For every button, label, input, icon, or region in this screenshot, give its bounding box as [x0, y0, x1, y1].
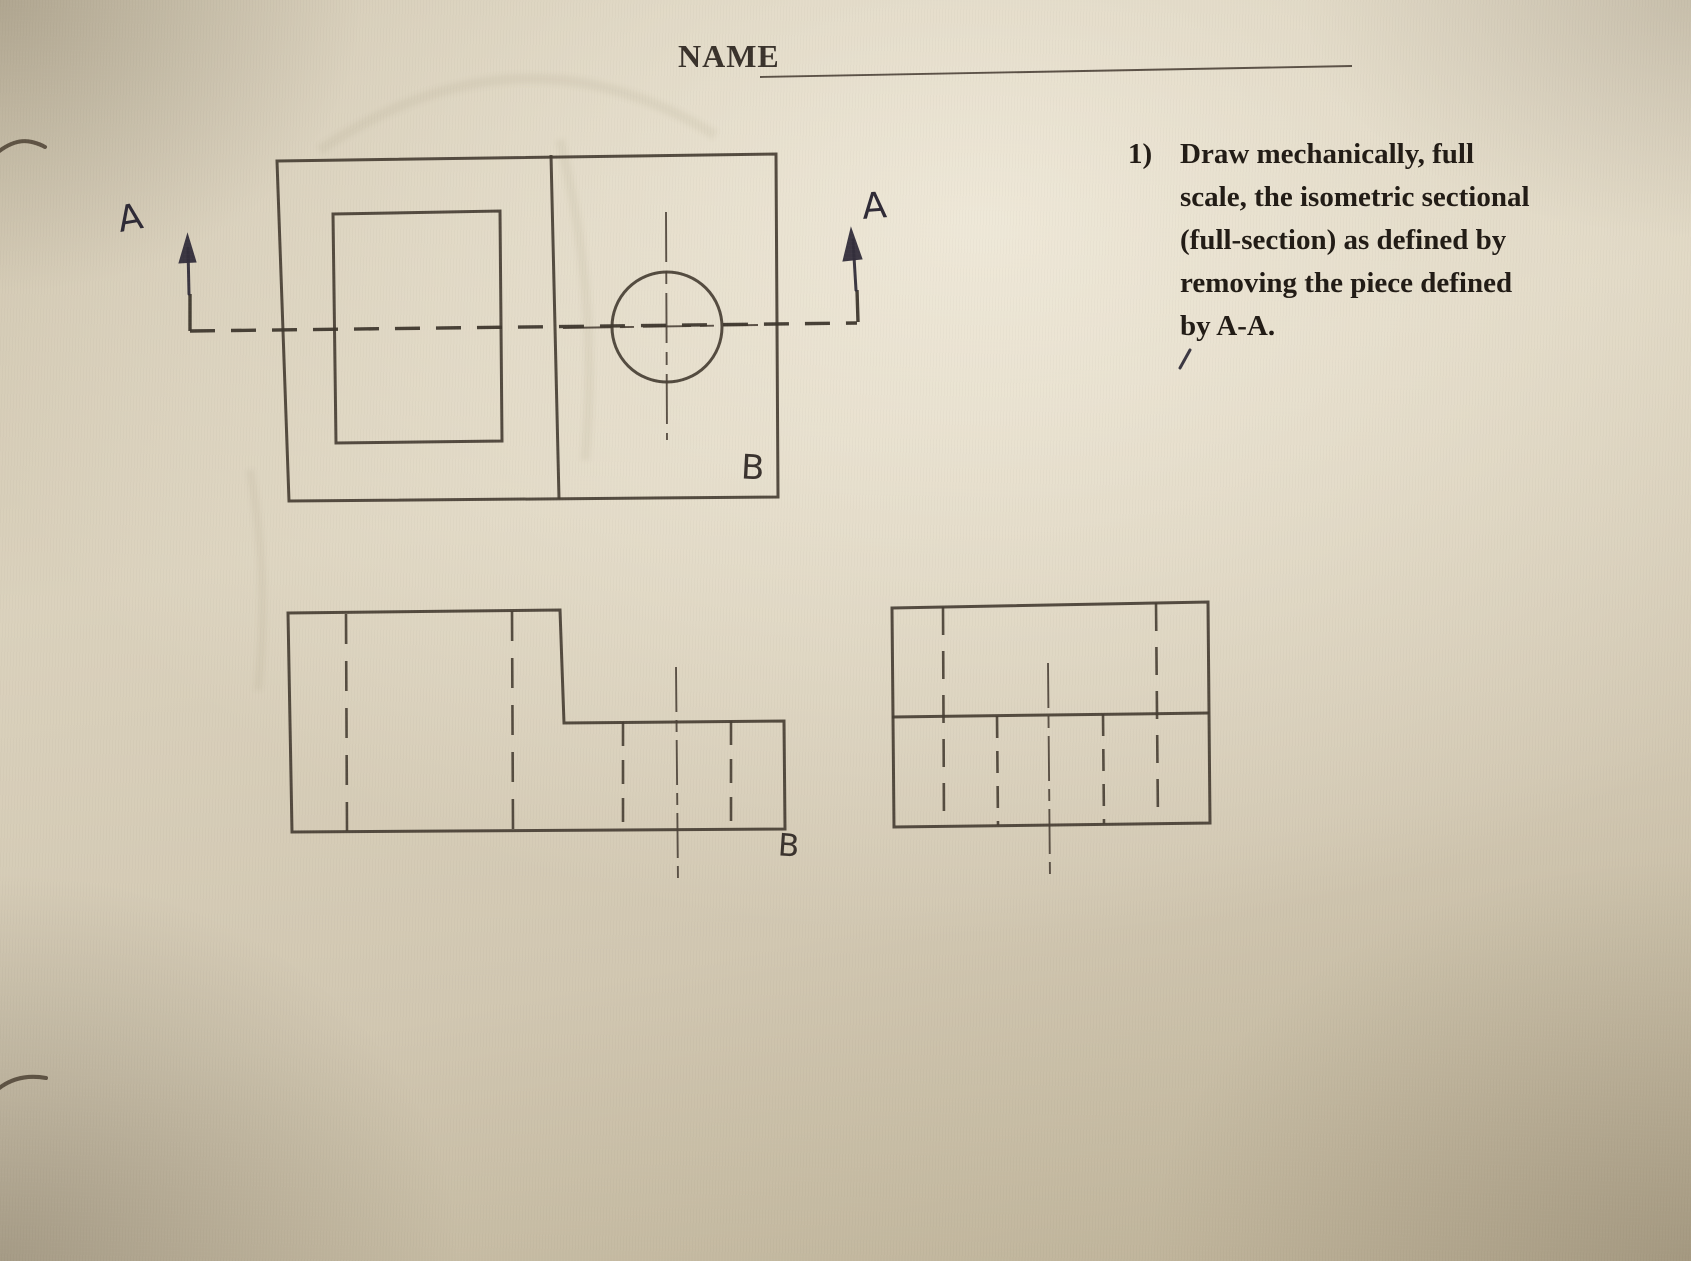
- side-view-centerline: [1048, 663, 1050, 880]
- question-number: 1): [1128, 133, 1152, 176]
- question-line: Draw mechanically, full: [1180, 133, 1598, 176]
- front-view: [288, 610, 785, 884]
- question-line: scale, the isometric sectional: [1180, 176, 1598, 219]
- name-label: NAME: [678, 38, 780, 75]
- question-line: by A-A.: [1180, 305, 1598, 348]
- top-view-divider-line: [551, 155, 559, 499]
- section-label-a-right: A: [861, 185, 888, 228]
- section-arrow-right-icon: [843, 228, 862, 322]
- view-label-b-front: B: [777, 827, 801, 864]
- side-view-middle-edge: [892, 713, 1209, 717]
- tick-mark: [1180, 350, 1190, 368]
- section-arrow-left-icon: [179, 234, 196, 331]
- binder-mark-bottom: [0, 1077, 46, 1089]
- binder-mark-top: [0, 141, 45, 152]
- ghost-impressions: [250, 79, 715, 690]
- name-blank-line: [760, 66, 1352, 77]
- question-line: removing the piece defined: [1180, 262, 1598, 305]
- hidden-line: [1103, 714, 1104, 824]
- hidden-line: [512, 611, 513, 830]
- worksheet-photo: NAME A A B B 1) Draw mechanically, full …: [0, 0, 1691, 1261]
- hidden-line: [346, 614, 347, 831]
- front-view-outline: [288, 610, 785, 832]
- front-view-centerline: [676, 667, 678, 884]
- side-view: [892, 602, 1210, 880]
- hidden-line: [943, 607, 944, 826]
- view-label-b-top: B: [740, 447, 765, 488]
- question-line: (full-section) as defined by: [1180, 219, 1598, 262]
- hidden-line: [1156, 603, 1158, 823]
- question-text: Draw mechanically, full scale, the isome…: [1180, 133, 1598, 348]
- question-block: 1) Draw mechanically, full scale, the is…: [1128, 133, 1598, 348]
- hidden-line: [997, 716, 998, 825]
